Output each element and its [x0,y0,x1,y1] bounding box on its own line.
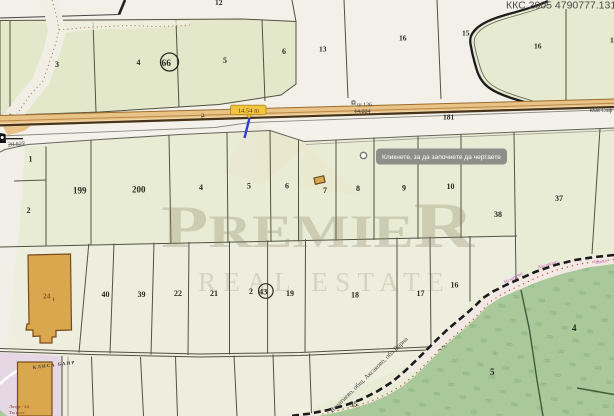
svg-text:24: 24 [43,292,51,301]
svg-text:6: 6 [282,47,286,56]
svg-text:3: 3 [55,60,59,69]
svg-text:4: 4 [199,183,203,192]
svg-text:8: 8 [356,184,360,193]
svg-text:Тм пост: Тм пост [9,410,25,415]
svg-text:7: 7 [323,186,327,195]
svg-text:16: 16 [451,281,459,290]
svg-text:Кликнете, за да започнете да ч: Кликнете, за да започнете да чертаете [382,154,501,161]
svg-text:към Соф: към Соф [590,107,612,114]
svg-text:14.54 m: 14.54 m [238,107,260,114]
svg-text:40: 40 [102,290,110,299]
svg-text:43: 43 [259,287,268,297]
svg-text:38: 38 [494,210,502,219]
svg-text:5: 5 [247,182,251,191]
svg-text:10: 10 [447,182,455,191]
svg-text:16: 16 [534,42,542,51]
svg-text:18: 18 [351,291,359,300]
svg-text:16: 16 [399,34,407,43]
svg-text:39: 39 [138,290,146,299]
svg-text:ККС 2005 4790777.131: ККС 2005 4790777.131 [506,0,614,12]
svg-text:66: 66 [162,59,172,69]
svg-text:15: 15 [462,29,470,38]
svg-text:21: 21 [210,289,218,298]
svg-text:9: 9 [402,184,406,193]
svg-text:ш 136: ш 136 [357,103,372,109]
svg-text:4: 4 [137,58,141,67]
svg-text:199: 199 [73,186,87,196]
svg-text:22: 22 [174,289,182,298]
svg-text:5: 5 [223,56,227,65]
svg-text:2: 2 [201,113,205,121]
svg-text:2: 2 [27,206,31,215]
svg-text:1: 1 [29,155,33,164]
svg-text:28.827: 28.827 [8,141,25,149]
svg-text:1: 1 [52,297,55,303]
svg-text:5: 5 [490,367,495,377]
svg-text:2: 2 [249,287,253,296]
svg-text:17: 17 [417,289,425,298]
svg-text:200: 200 [132,185,146,195]
svg-text:19: 19 [286,289,294,298]
svg-text:4: 4 [572,323,577,333]
svg-text:37: 37 [555,194,563,203]
svg-text:14.224: 14.224 [354,109,371,115]
svg-text:1: 1 [610,36,614,45]
svg-text:6: 6 [285,182,289,191]
svg-text:181: 181 [443,113,455,122]
svg-text:REAL ESTATE: REAL ESTATE [198,267,451,297]
svg-text:Лазур - 44: Лазур - 44 [9,404,30,409]
svg-text:12: 12 [215,0,223,7]
svg-text:35: 35 [350,400,358,409]
svg-text:13: 13 [319,45,327,54]
